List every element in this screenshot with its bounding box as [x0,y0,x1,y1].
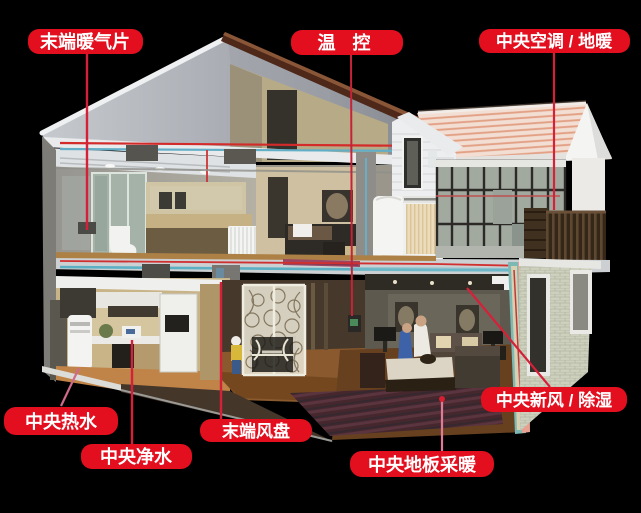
svg-text:中央空调 / 地暖: 中央空调 / 地暖 [496,31,613,51]
svg-text:温 控: 温 控 [317,32,376,53]
svg-text:末端风盘: 末端风盘 [222,421,290,441]
svg-text:中央热水: 中央热水 [25,411,98,432]
svg-text:末端暖气片: 末端暖气片 [40,31,130,52]
svg-text:中央净水: 中央净水 [100,446,173,467]
svg-text:中央地板采暖: 中央地板采暖 [368,454,477,475]
svg-text:中央新风 / 除湿: 中央新风 / 除湿 [496,390,612,410]
